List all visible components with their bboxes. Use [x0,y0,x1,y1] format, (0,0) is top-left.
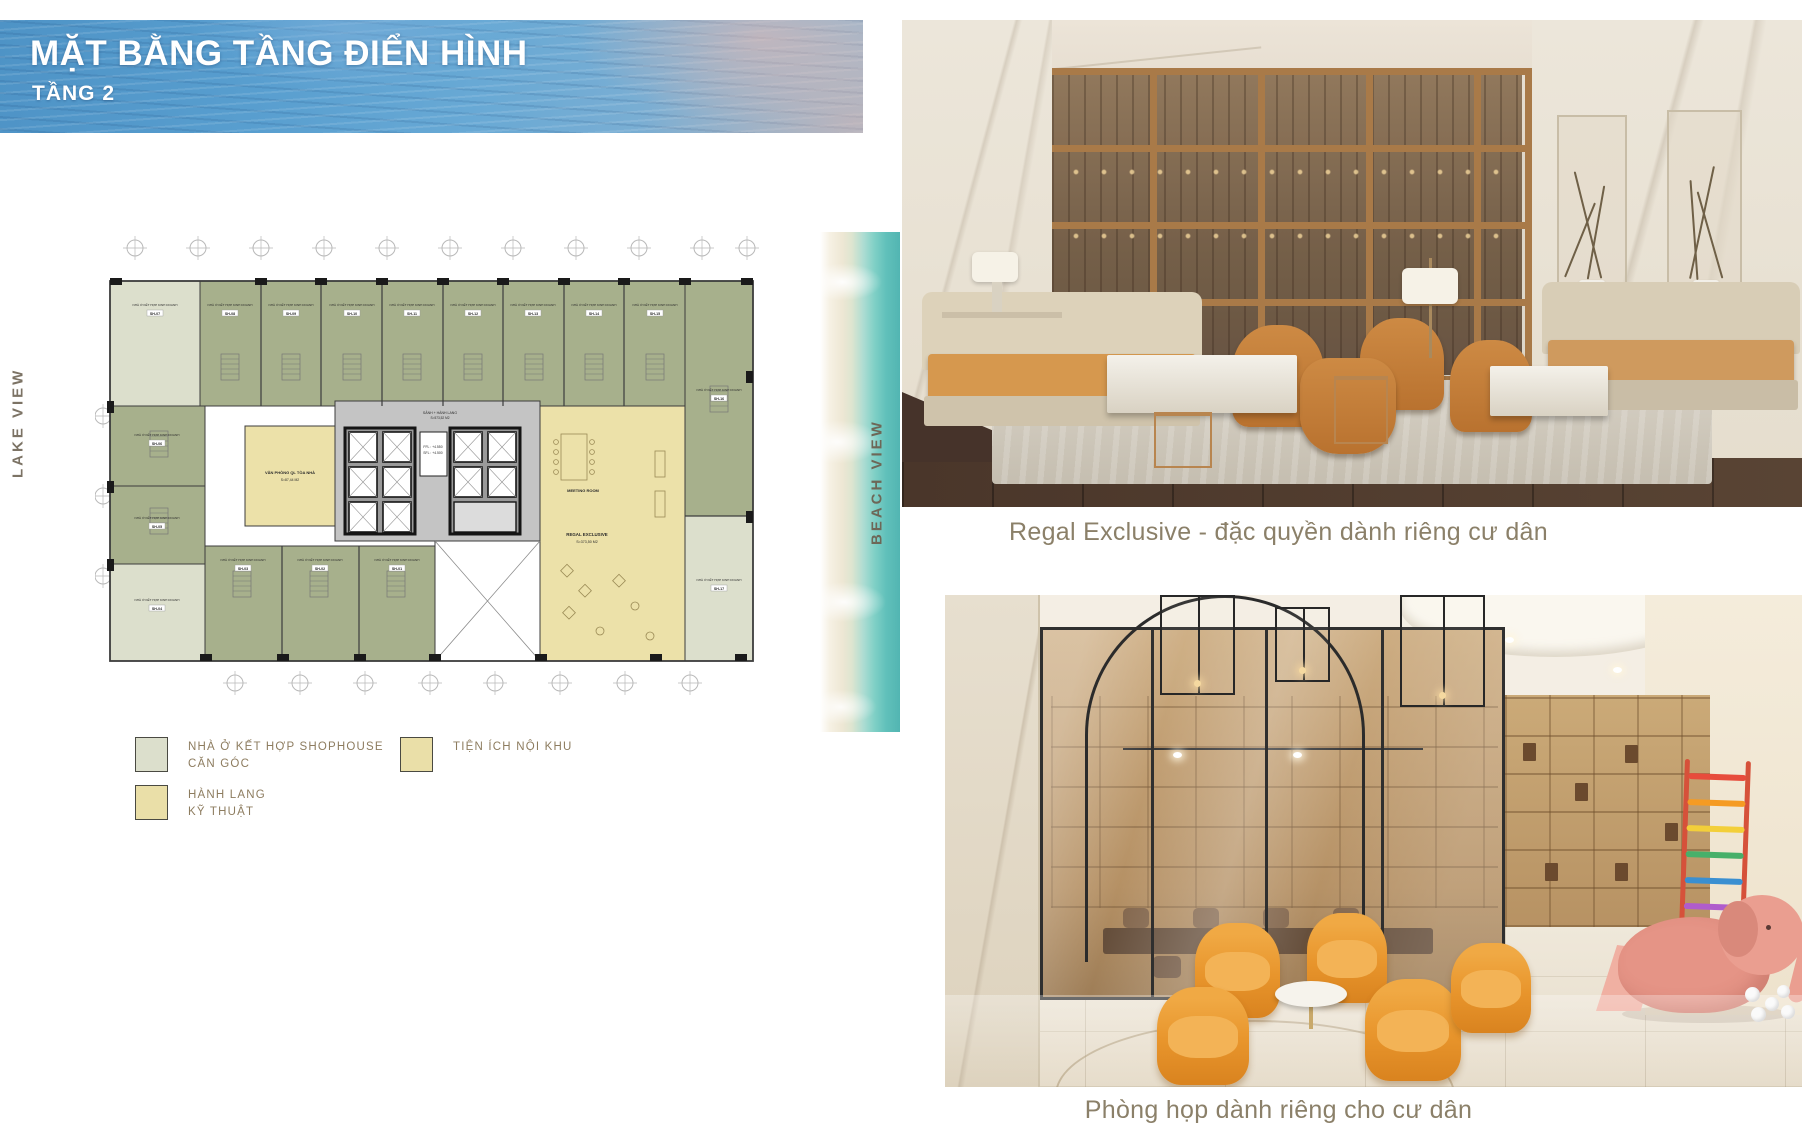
svg-text:NHÀ Ở KẾT HỢP KINH DOANH: NHÀ Ở KẾT HỢP KINH DOANH [135,432,180,437]
svg-text:SH-06: SH-06 [152,442,162,446]
svg-text:SFL : +4.500: SFL : +4.500 [423,451,442,455]
play-ball [1745,987,1760,1002]
play-ball [1777,985,1790,998]
svg-text:MEETING ROOM: MEETING ROOM [567,488,599,493]
svg-text:NHÀ Ở KẾT HỢP KINH DOANH: NHÀ Ở KẾT HỢP KINH DOANH [135,597,180,602]
photo-regal-exclusive-lounge [902,20,1802,507]
play-ball [1751,1007,1766,1022]
photo-caption-meeting-room: Phòng họp dành riêng cho cư dân [755,1096,1802,1125]
wall-panel-frame [1667,110,1742,310]
page-subtitle: TẦNG 2 [32,82,115,106]
brass-side-table [1154,412,1212,468]
floor-lamp-shade [1402,268,1458,304]
svg-text:REGAL EXCLUSIVE: REGAL EXCLUSIVE [566,532,607,537]
svg-text:SH-09: SH-09 [286,312,296,316]
beach-strip-image: BEACH VIEW [820,232,900,732]
legend-swatch-hanh-lang [135,785,168,820]
svg-text:NHÀ Ở KẾT HỢP KINH DOANH: NHÀ Ở KẾT HỢP KINH DOANH [511,302,556,307]
svg-text:VĂN PHÒNG QL TÒA NHÀ: VĂN PHÒNG QL TÒA NHÀ [265,470,315,475]
legend-item-shophouse: NHÀ Ở KẾT HỢP SHOPHOUSECĂN GÓC [135,737,384,773]
beach-view-label: BEACH VIEW [857,232,897,732]
svg-text:SH-12: SH-12 [468,312,478,316]
book [1545,863,1558,881]
console-table [942,312,1062,318]
svg-text:SH-05: SH-05 [152,525,162,529]
svg-text:SH-15: SH-15 [650,312,660,316]
svg-text:NHÀ Ở KẾT HỢP KINH DOANH: NHÀ Ở KẾT HỢP KINH DOANH [269,302,314,307]
svg-text:NHÀ Ở KẾT HỢP KINH DOANH: NHÀ Ở KẾT HỢP KINH DOANH [298,557,343,562]
ceiling-spotlight [1505,637,1514,643]
legend-swatch-shophouse [135,737,168,772]
play-ball [1781,1005,1795,1019]
svg-text:SH-03: SH-03 [238,567,248,571]
brochure-page: MẶT BẰNG TẦNG ĐIỂN HÌNH TẦNG 2 LAKE VIEW [0,0,1802,1128]
wall-panel-frame [1557,115,1627,310]
svg-text:NHÀ Ở KẾT HỢP KINH DOANH: NHÀ Ở KẾT HỢP KINH DOANH [633,302,678,307]
svg-text:NHÀ Ở KẾT HỢP KINH DOANH: NHÀ Ở KẾT HỢP KINH DOANH [221,557,266,562]
photo-meeting-room [945,595,1802,1087]
svg-text:S=373,50 M2: S=373,50 M2 [576,540,597,544]
svg-text:SH-16: SH-16 [714,397,724,401]
header-banner: MẶT BẰNG TẦNG ĐIỂN HÌNH TẦNG 2 [0,20,863,133]
svg-text:FFL : +4.550: FFL : +4.550 [423,445,442,449]
book [1615,863,1628,881]
svg-text:SH-02: SH-02 [315,567,325,571]
wireframe-pendant-lantern [1275,607,1330,682]
book [1523,743,1536,761]
svg-text:NHÀ Ở KẾT HỢP KINH DOANH: NHÀ Ở KẾT HỢP KINH DOANH [135,515,180,520]
svg-text:SH-04: SH-04 [152,607,162,611]
dry-branch [1697,191,1724,278]
legend-item-tien-ich: TIỆN ÍCH NỘI KHU [400,737,573,772]
brass-side-table [1334,376,1388,444]
svg-text:SH-11: SH-11 [407,312,417,316]
svg-text:NHÀ Ở KẾT HỢP KINH DOANH: NHÀ Ở KẾT HỢP KINH DOANH [697,387,742,392]
svg-text:NHÀ Ở KẾT HỢP KINH DOANH: NHÀ Ở KẾT HỢP KINH DOANH [330,302,375,307]
svg-text:SH-01: SH-01 [392,567,402,571]
table-lamp-body [992,282,1002,312]
legend-label: HÀNH LANGKỸ THUẬT [188,785,266,821]
svg-text:SH-07: SH-07 [150,312,160,316]
svg-text:S=87,44 M2: S=87,44 M2 [281,478,299,482]
elephant-eye [1766,925,1771,930]
wireframe-pendant-lantern [1400,595,1485,707]
orange-armchair [1451,943,1531,1033]
svg-text:SẢNH + HÀNH LANG: SẢNH + HÀNH LANG [423,410,457,415]
svg-text:SH-10: SH-10 [347,312,357,316]
legend-item-hanh-lang: HÀNH LANGKỸ THUẬT [135,785,266,821]
svg-text:NHÀ Ở KẾT HỢP KINH DOANH: NHÀ Ở KẾT HỢP KINH DOANH [375,557,420,562]
svg-text:NHÀ Ở KẾT HỢP KINH DOANH: NHÀ Ở KẾT HỢP KINH DOANH [208,302,253,307]
svg-text:NHÀ Ở KẾT HỢP KINH DOANH: NHÀ Ở KẾT HỢP KINH DOANH [572,302,617,307]
legend-label: NHÀ Ở KẾT HỢP SHOPHOUSECĂN GÓC [188,737,384,773]
marble-coffee-table [1107,355,1297,413]
lake-view-label: LAKE VIEW [4,355,32,490]
book [1665,823,1678,841]
svg-text:NHÀ Ở KẾT HỢP KINH DOANH: NHÀ Ở KẾT HỢP KINH DOANH [133,302,178,307]
orange-armchair [1157,987,1249,1085]
round-side-table [1275,981,1347,1007]
marble-coffee-table [1490,366,1608,416]
page-title: MẶT BẰNG TẦNG ĐIỂN HÌNH [30,34,528,74]
legend-swatch-tien-ich [400,737,433,772]
svg-text:SH-08: SH-08 [225,312,235,316]
svg-text:NHÀ Ở KẾT HỢP KINH DOANH: NHÀ Ở KẾT HỢP KINH DOANH [390,302,435,307]
svg-text:S=573,52 M2: S=573,52 M2 [430,416,449,420]
svg-text:NHÀ Ở KẾT HỢP KINH DOANH: NHÀ Ở KẾT HỢP KINH DOANH [697,577,742,582]
legend-label: TIỆN ÍCH NỘI KHU [453,737,573,772]
photo-caption-regal-exclusive: Regal Exclusive - đặc quyền dành riêng c… [755,518,1802,547]
book [1625,745,1638,763]
floor-plan-drawing: NHÀ Ở KẾT HỢP KINH DOANH NHÀ Ở KẾT HỢP K… [95,236,760,696]
play-ball [1765,997,1779,1011]
table-lamp-shade [972,252,1018,282]
orange-armchair [1365,979,1461,1081]
elephant-ear [1718,901,1758,957]
svg-text:NHÀ Ở KẾT HỢP KINH DOANH: NHÀ Ở KẾT HỢP KINH DOANH [451,302,496,307]
svg-text:SH-17: SH-17 [714,587,724,591]
svg-text:SH-13: SH-13 [528,312,538,316]
ceiling-spotlight [1613,667,1622,673]
book [1575,783,1588,801]
wireframe-pendant-lantern [1160,595,1235,695]
svg-text:SH-14: SH-14 [589,312,599,316]
